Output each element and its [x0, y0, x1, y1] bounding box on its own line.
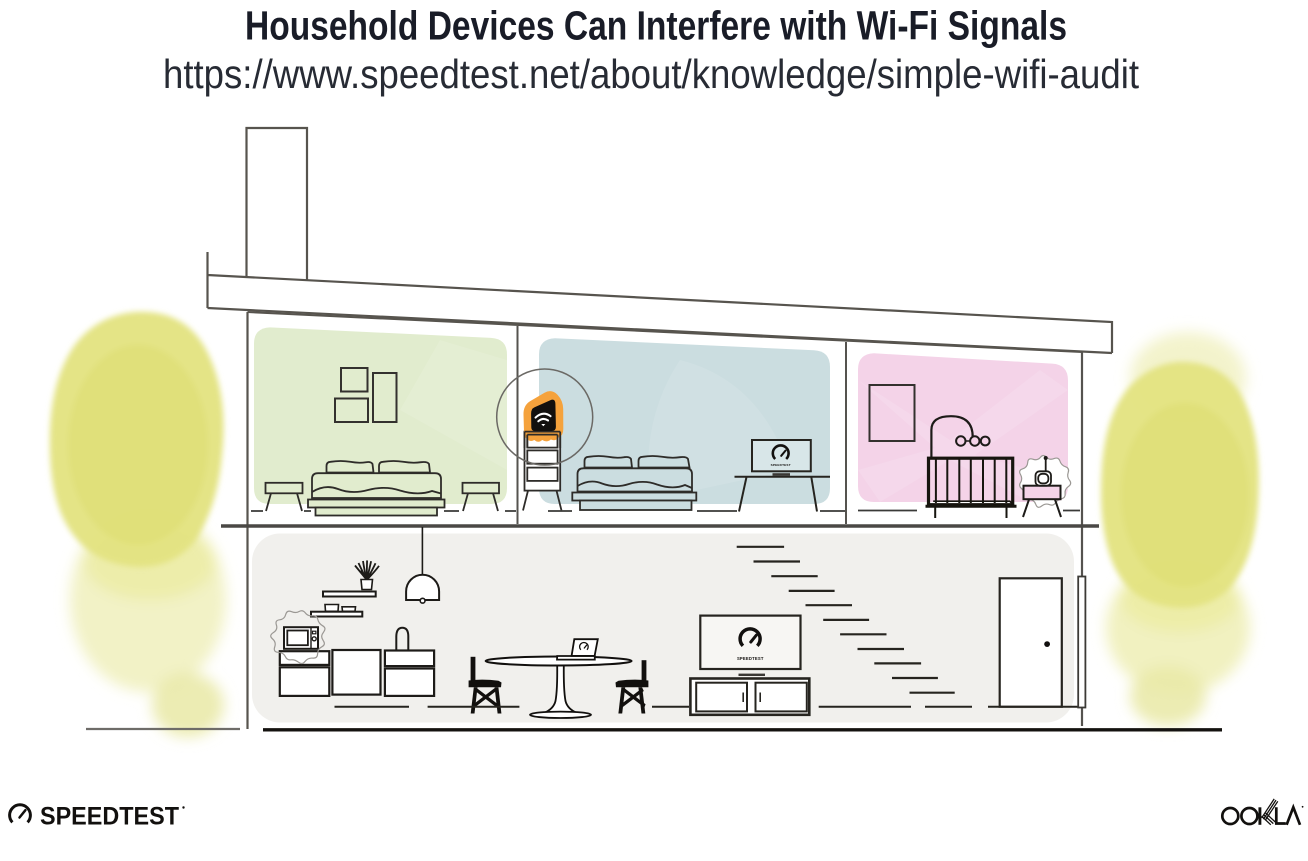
svg-text:SPEEDTEST: SPEEDTEST: [737, 656, 764, 661]
svg-text:SPEEDTEST: SPEEDTEST: [771, 463, 791, 467]
svg-text:SPEEDTEST: SPEEDTEST: [40, 803, 179, 831]
svg-text:https://www.speedtest.net/abou: https://www.speedtest.net/about/knowledg…: [163, 51, 1140, 97]
svg-text:Household Devices Can Interfer: Household Devices Can Interfere with Wi-…: [245, 3, 1067, 49]
